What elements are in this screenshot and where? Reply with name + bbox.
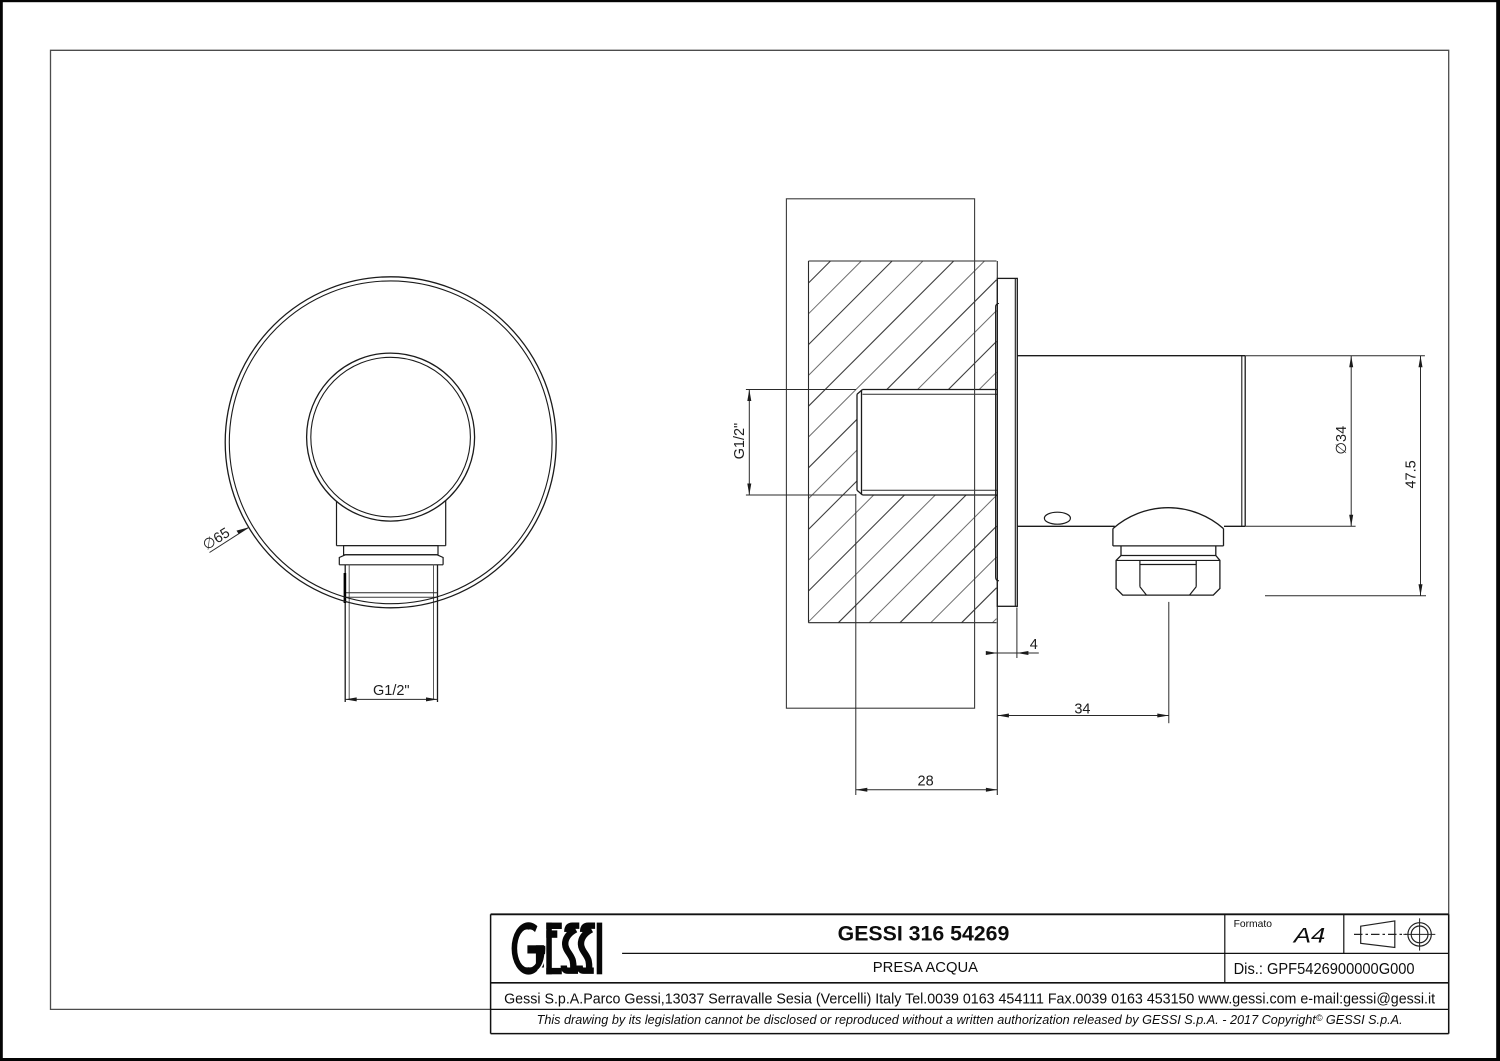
svg-text:Formato: Formato	[1234, 919, 1273, 930]
svg-text:This drawing by its legislatio: This drawing by its legislation cannot b…	[537, 1013, 1403, 1027]
svg-text:47.5: 47.5	[1404, 460, 1420, 488]
svg-text:PRESA ACQUA: PRESA ACQUA	[873, 960, 978, 976]
svg-text:34: 34	[1074, 701, 1090, 717]
svg-text:Gessi S.p.A.Parco Gessi,13037: Gessi S.p.A.Parco Gessi,13037 Serravalle…	[504, 992, 1435, 1008]
svg-text:4: 4	[1030, 637, 1038, 653]
svg-text:G1/2": G1/2"	[373, 683, 410, 699]
svg-text:Dis.: GPF5426900000G000: Dis.: GPF5426900000G000	[1234, 961, 1415, 978]
svg-text:A4: A4	[1291, 923, 1325, 947]
svg-text:G1/2": G1/2"	[732, 423, 748, 460]
svg-text:∅34: ∅34	[1334, 426, 1350, 455]
svg-text:28: 28	[918, 774, 934, 790]
svg-text:GESSI 316 54269: GESSI 316 54269	[838, 922, 1010, 946]
